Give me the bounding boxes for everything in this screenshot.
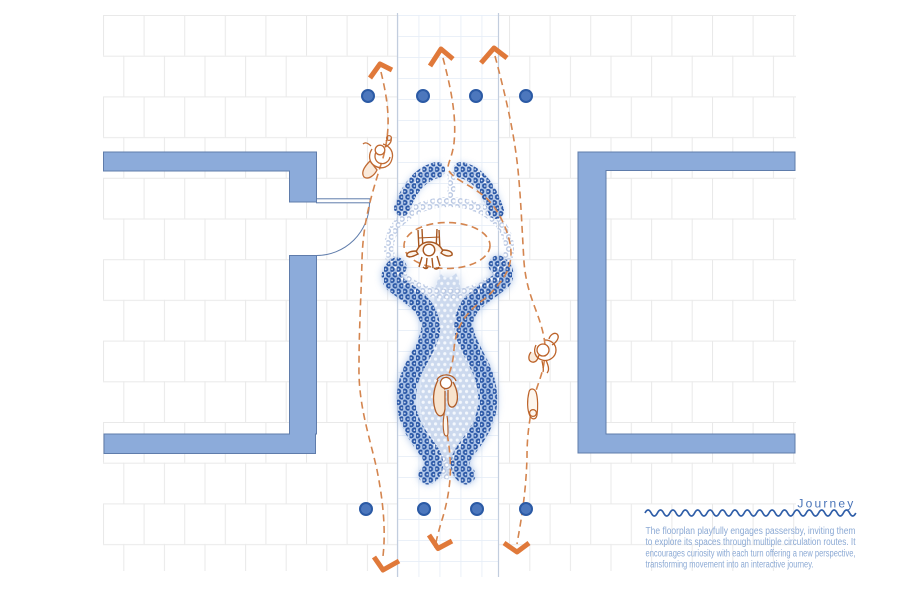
svg-text:to explore its spaces through: to explore its spaces through multiple c… xyxy=(646,537,856,548)
svg-text:Journey: Journey xyxy=(797,497,855,511)
svg-text:The floorplan playfully engage: The floorplan playfully engages passersb… xyxy=(646,526,856,537)
svg-text:transforming movement into an: transforming movement into an interactiv… xyxy=(646,560,814,571)
svg-text:encourages curiosity with each: encourages curiosity with each turn offe… xyxy=(646,548,856,559)
